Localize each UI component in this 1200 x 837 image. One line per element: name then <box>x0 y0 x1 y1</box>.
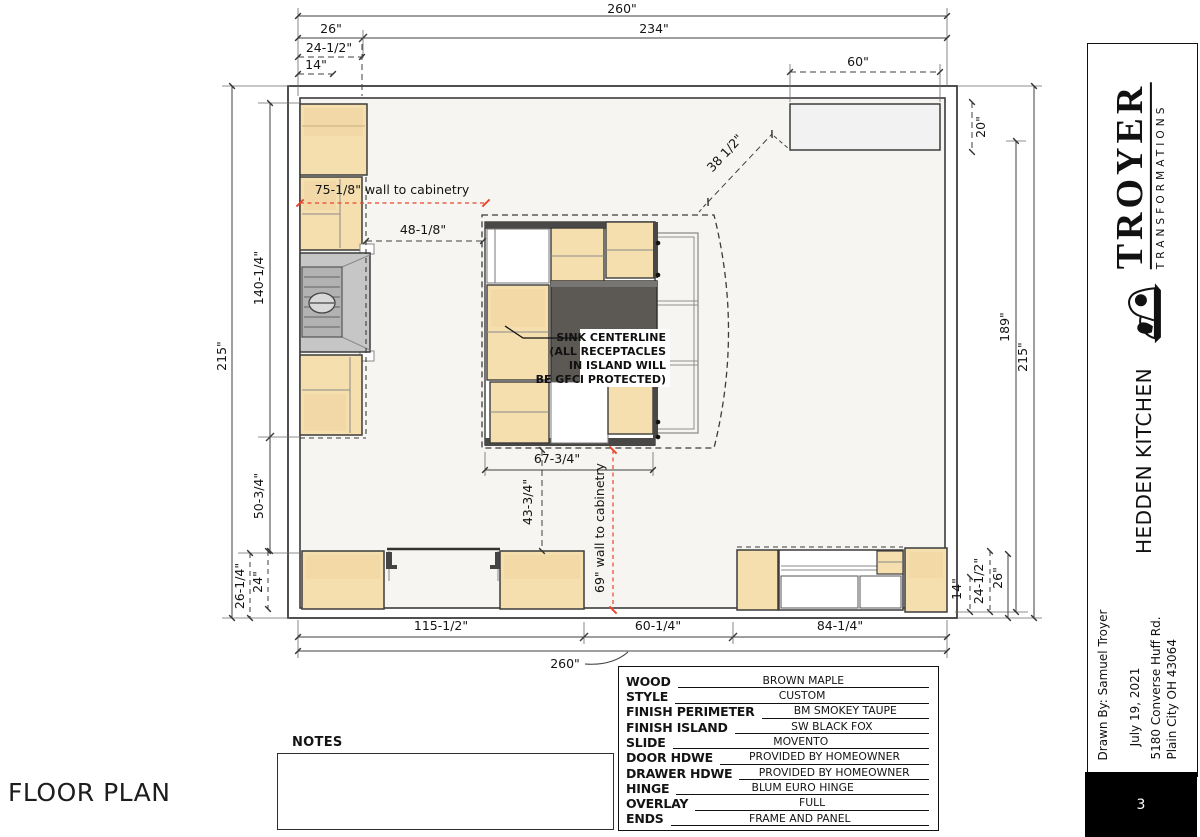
dim-left-215: 215" <box>214 341 229 371</box>
address-line2: Plain City OH 43064 <box>1164 616 1180 759</box>
dim-right-low-26: 26" <box>990 567 1005 589</box>
hand-plane-icon <box>1117 281 1163 345</box>
spec-value: BROWN MAPLE <box>678 675 929 688</box>
spec-value: MOVENTO <box>673 736 929 749</box>
spec-value: BLUM EURO HINGE <box>676 782 929 795</box>
drawing-date: July 19, 2021 <box>1128 668 1142 747</box>
dim-top-60: 60" <box>847 54 869 69</box>
notes-label: NOTES <box>292 735 343 750</box>
project-title: HEDDEN KITCHEN <box>1132 368 1156 554</box>
spec-value: SW BLACK FOX <box>735 721 929 734</box>
spec-value: CUSTOM <box>675 690 929 703</box>
spec-row-slide: SLIDEMOVENTO <box>626 734 929 749</box>
spec-row-wood: WOODBROWN MAPLE <box>626 673 929 688</box>
company-address: 5180 Converse Huff Rd. Plain City OH 430… <box>1148 616 1180 759</box>
spec-row-finish-perimeter: FINISH PERIMETERBM SMOKEY TAUPE <box>626 704 929 719</box>
sink-note-line4: BE GFCI PROTECTED) <box>536 373 666 386</box>
dim-left-50: 50-3/4" <box>251 473 266 519</box>
dim-69-wall-to-cabinetry: 69" wall to cabinetry <box>592 462 607 593</box>
dim-bottom-60: 60-1/4" <box>635 618 681 633</box>
spec-label: WOOD <box>626 676 678 689</box>
spec-table: WOODBROWN MAPLE STYLECUSTOM FINISH PERIM… <box>618 666 939 831</box>
dim-left-24: 24" <box>250 571 265 593</box>
spec-label: SLIDE <box>626 737 673 750</box>
company-tagline: TRANSFORMATIONS <box>1150 83 1167 270</box>
spec-row-hinge: HINGEBLUM EURO HINGE <box>626 780 929 795</box>
sink-note-line2: (ALL RECEPTACLES <box>549 345 666 358</box>
company-logo-text: TROYER TRANSFORMATIONS <box>1113 83 1167 270</box>
dim-island-67: 67-3/4" <box>534 451 580 466</box>
spec-value: PROVIDED BY HOMEOWNER <box>720 751 929 764</box>
refrigerator <box>790 104 940 150</box>
drawn-by: Drawn By: Samuel Troyer <box>1096 610 1110 761</box>
dim-48: 48-1/8" <box>400 222 446 237</box>
page-number: 3 <box>1137 797 1146 813</box>
spec-label: FINISH PERIMETER <box>626 706 762 719</box>
spec-row-ends: ENDSFRAME AND PANEL <box>626 811 929 826</box>
dim-left-26quarter: 26-1/4" <box>232 563 247 609</box>
dim-bottom-115: 115-1/2" <box>414 618 468 633</box>
floor-plan-drawing: SINK CENTERLINE (ALL RECEPTACLES IN ISLA… <box>0 0 1200 837</box>
dim-top-14: 14" <box>305 57 327 72</box>
dim-right-20: 20" <box>973 116 988 138</box>
spec-value: BM SMOKEY TAUPE <box>762 705 929 718</box>
dim-right-189: 189" <box>997 312 1012 342</box>
address-line1: 5180 Converse Huff Rd. <box>1148 616 1164 759</box>
dim-right-low-14: 14" <box>949 578 964 600</box>
dim-top-234: 234" <box>639 21 669 36</box>
dim-75-wall-to-cabinetry: 75-1/8" wall to cabinetry <box>315 182 470 197</box>
notes-box <box>277 753 614 830</box>
dim-top-260: 260" <box>607 1 637 16</box>
spec-label: OVERLAY <box>626 798 695 811</box>
spec-value: FRAME AND PANEL <box>671 813 929 826</box>
bottom-right-hutch <box>737 547 947 612</box>
spec-value: PROVIDED BY HOMEOWNER <box>739 767 929 780</box>
dim-island-43: 43-3/4" <box>520 479 535 525</box>
dim-right-215: 215" <box>1015 342 1030 372</box>
bottom-260-leader <box>585 652 628 664</box>
spec-label: DOOR HDWE <box>626 752 720 765</box>
spec-value: FULL <box>695 797 929 810</box>
spec-label: STYLE <box>626 691 675 704</box>
company-logo: TROYER TRANSFORMATIONS <box>1113 83 1167 346</box>
spec-label: FINISH ISLAND <box>626 722 735 735</box>
sink-note-line1: SINK CENTERLINE <box>556 331 666 344</box>
sink-note-line3: IN ISLAND WILL <box>569 359 666 372</box>
spec-row-finish-island: FINISH ISLANDSW BLACK FOX <box>626 719 929 734</box>
company-name: TROYER <box>1113 83 1147 270</box>
spec-label: ENDS <box>626 813 671 826</box>
dim-right-low-24half: 24-1/2" <box>971 558 986 604</box>
dim-bottom-84: 84-1/4" <box>817 618 863 633</box>
title-block: TROYER TRANSFORMATIONS HEDDEN KITCHEN Dr… <box>1087 43 1198 777</box>
spec-row-drawer-hdwe: DRAWER HDWEPROVIDED BY HOMEOWNER <box>626 765 929 780</box>
page-number-box: 3 <box>1085 772 1197 837</box>
dim-top-24half: 24-1/2" <box>306 40 352 55</box>
spec-row-door-hdwe: DOOR HDWEPROVIDED BY HOMEOWNER <box>626 749 929 764</box>
dim-top-26: 26" <box>320 21 342 36</box>
spec-label: HINGE <box>626 783 676 796</box>
spec-row-style: STYLECUSTOM <box>626 688 929 703</box>
page-title: FLOOR PLAN <box>8 778 170 807</box>
range-cooktop <box>300 244 374 361</box>
spec-label: DRAWER HDWE <box>626 768 739 781</box>
spec-row-overlay: OVERLAYFULL <box>626 795 929 810</box>
dim-left-140: 140-1/4" <box>251 251 266 305</box>
dim-bottom-260: 260" <box>550 656 580 671</box>
